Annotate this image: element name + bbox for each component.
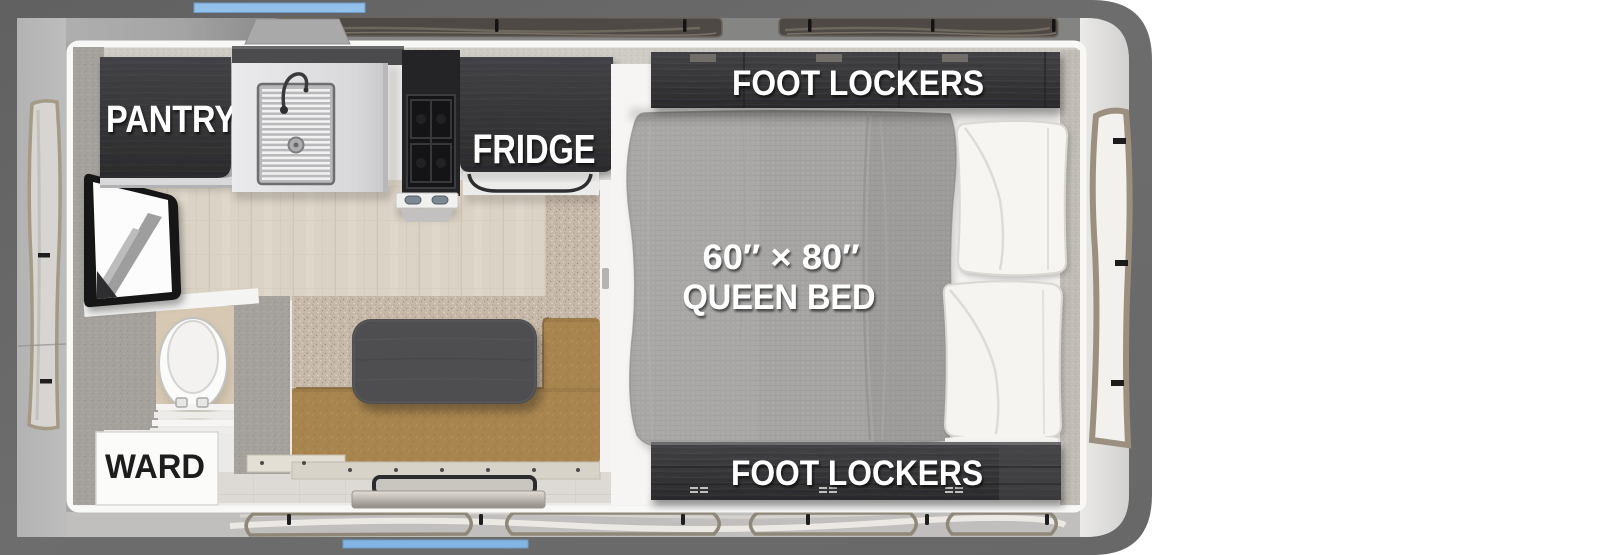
svg-text:FRIDGE: FRIDGE (473, 126, 596, 172)
svg-text:FOOT LOCKERS: FOOT LOCKERS (732, 64, 984, 103)
svg-text:60″ × 80″: 60″ × 80″ (703, 238, 860, 277)
svg-text:FOOT LOCKERS: FOOT LOCKERS (731, 454, 983, 493)
svg-text:WARD: WARD (105, 448, 205, 486)
svg-text:QUEEN BED: QUEEN BED (683, 278, 876, 317)
svg-text:PANTRY: PANTRY (106, 99, 236, 141)
